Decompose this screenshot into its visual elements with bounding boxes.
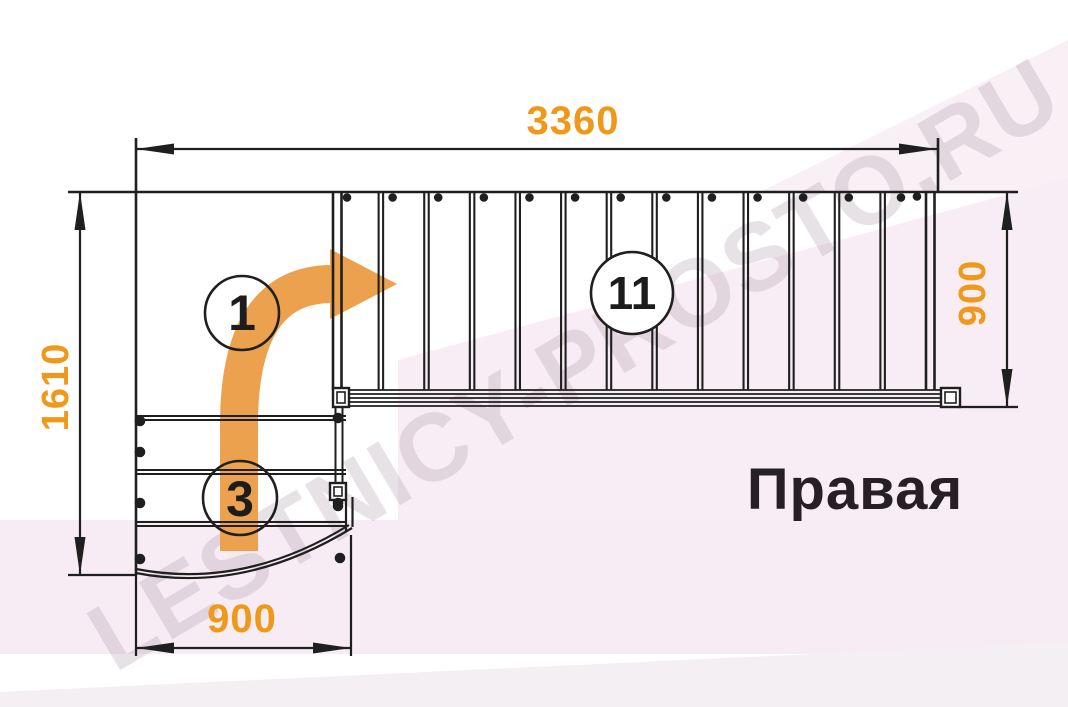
dim-label-1610: 1610: [37, 305, 75, 469]
baluster-dot: [525, 193, 534, 202]
dim-label-3360: 3360: [493, 101, 653, 141]
direction-arrow-head: [330, 249, 397, 319]
baluster-dot: [897, 193, 906, 202]
dimension-top: [136, 144, 937, 155]
baluster-dot: [571, 193, 580, 202]
staircase-plan-diagram: LESTNICY-PROSTO.RU: [0, 0, 1068, 707]
baluster-dot: [136, 448, 145, 457]
dimension-left: [68, 192, 136, 575]
baluster-dot: [913, 192, 922, 201]
baluster-dot: [136, 499, 145, 508]
dim-arrow-left: [136, 144, 174, 155]
dim-arrow-right: [899, 144, 937, 155]
baluster-dot: [434, 193, 443, 202]
baluster-dot: [334, 502, 343, 511]
step-number-1: 1: [228, 285, 256, 341]
baluster-dot: [616, 193, 625, 202]
direction-label: Правая: [655, 456, 1055, 523]
baluster-dot: [799, 193, 808, 202]
handrail-stringer: [333, 390, 958, 406]
direction-arrow: [239, 249, 397, 551]
baluster-dot: [136, 417, 145, 426]
baluster-dot: [136, 555, 145, 564]
baluster-dot: [336, 554, 345, 563]
dim-label-900-bottom: 900: [162, 599, 322, 639]
baluster-dot: [343, 193, 352, 202]
step-number-3: 3: [226, 471, 254, 527]
baluster-dot: [844, 193, 853, 202]
baluster-dot: [388, 193, 397, 202]
step-number-11: 11: [608, 267, 657, 319]
baluster-dot: [753, 193, 762, 202]
baluster-dot: [662, 193, 671, 202]
baluster-dot: [708, 193, 717, 202]
dim-label-900-right: 900: [954, 233, 992, 353]
baluster-dot: [334, 414, 343, 423]
baluster-dot: [480, 193, 489, 202]
